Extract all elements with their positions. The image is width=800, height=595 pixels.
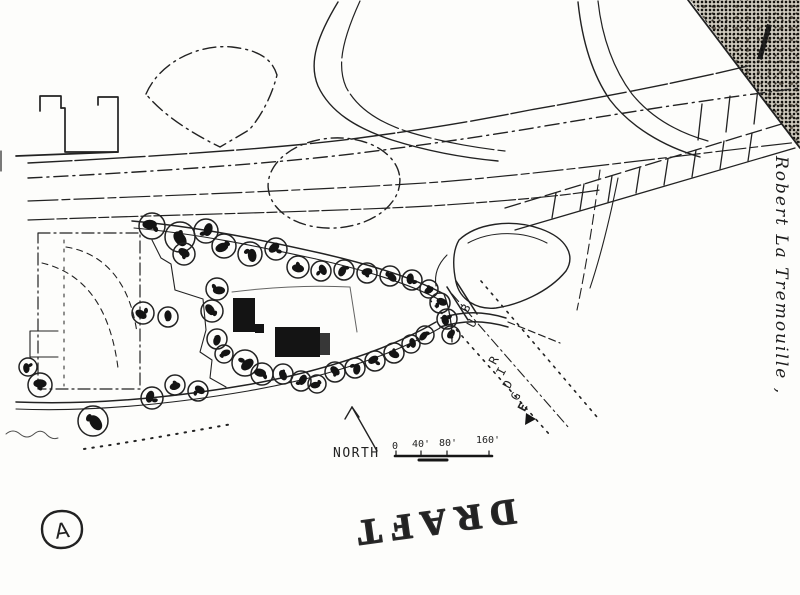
north-arrow <box>345 407 377 451</box>
site-plan-drawing: NORTH 0 40' 80' 160' B U R I D G E DRAFT <box>0 0 800 595</box>
tree-canopy <box>173 243 195 265</box>
tree-canopy <box>215 345 233 363</box>
tree-canopy <box>212 234 236 258</box>
rotary-circle <box>265 134 403 233</box>
street-letter: R <box>486 353 502 367</box>
scale-label: 0 <box>392 441 398 452</box>
ballfield-outline <box>30 233 140 389</box>
tree-canopy <box>287 256 309 278</box>
tree-canopy <box>430 293 450 313</box>
scale-bar <box>395 451 492 460</box>
tree-canopy <box>139 213 165 239</box>
tree-canopy <box>19 358 37 376</box>
scan-corner-edge <box>688 0 800 148</box>
tree-canopy <box>357 263 377 283</box>
tree-canopy <box>165 375 185 395</box>
tree-canopy <box>206 278 228 300</box>
tree-canopy <box>207 329 227 349</box>
scale-label: 40' <box>412 439 430 450</box>
tree-canopy <box>380 266 400 286</box>
scale-label: 80' <box>439 438 457 449</box>
tree-canopy <box>28 373 52 397</box>
tree-canopy <box>325 362 345 382</box>
tree-canopy <box>311 261 331 281</box>
ground-marks <box>1 151 232 449</box>
fan-parcel-outline <box>146 47 277 147</box>
scale-labels: 0 40' 80' 160' <box>392 435 500 452</box>
road-network <box>28 1 800 220</box>
scale-label: 160' <box>476 435 500 446</box>
tree-canopy <box>402 335 420 353</box>
tree-canopy <box>132 302 154 324</box>
street-letter: G <box>508 390 524 403</box>
street-letter: I <box>493 365 509 378</box>
handwritten-note: Robert La Tremouille , <box>771 156 791 398</box>
sheet-letter: A <box>53 518 71 544</box>
tree-canopy <box>78 406 108 436</box>
tree-canopy <box>345 358 365 378</box>
building-outline-north <box>16 96 118 156</box>
scanned-site-plan-page: NORTH 0 40' 80' 160' B U R I D G E DRAFT <box>0 0 800 595</box>
street-name-letters: B U R I D G E <box>458 302 531 414</box>
building-footprints <box>233 298 330 357</box>
tree-canopy <box>273 364 293 384</box>
street-letter: E <box>515 401 531 414</box>
tree-canopy <box>365 351 385 371</box>
draft-watermark: DRAFT <box>346 491 519 554</box>
street-arrow-mark <box>525 413 536 425</box>
sheet-marker: A <box>42 511 82 548</box>
tree-canopy <box>334 260 354 280</box>
tree-canopy <box>158 307 178 327</box>
street-letter: D <box>500 378 516 391</box>
north-label: NORTH <box>333 446 380 461</box>
street-letter: U <box>464 317 480 330</box>
